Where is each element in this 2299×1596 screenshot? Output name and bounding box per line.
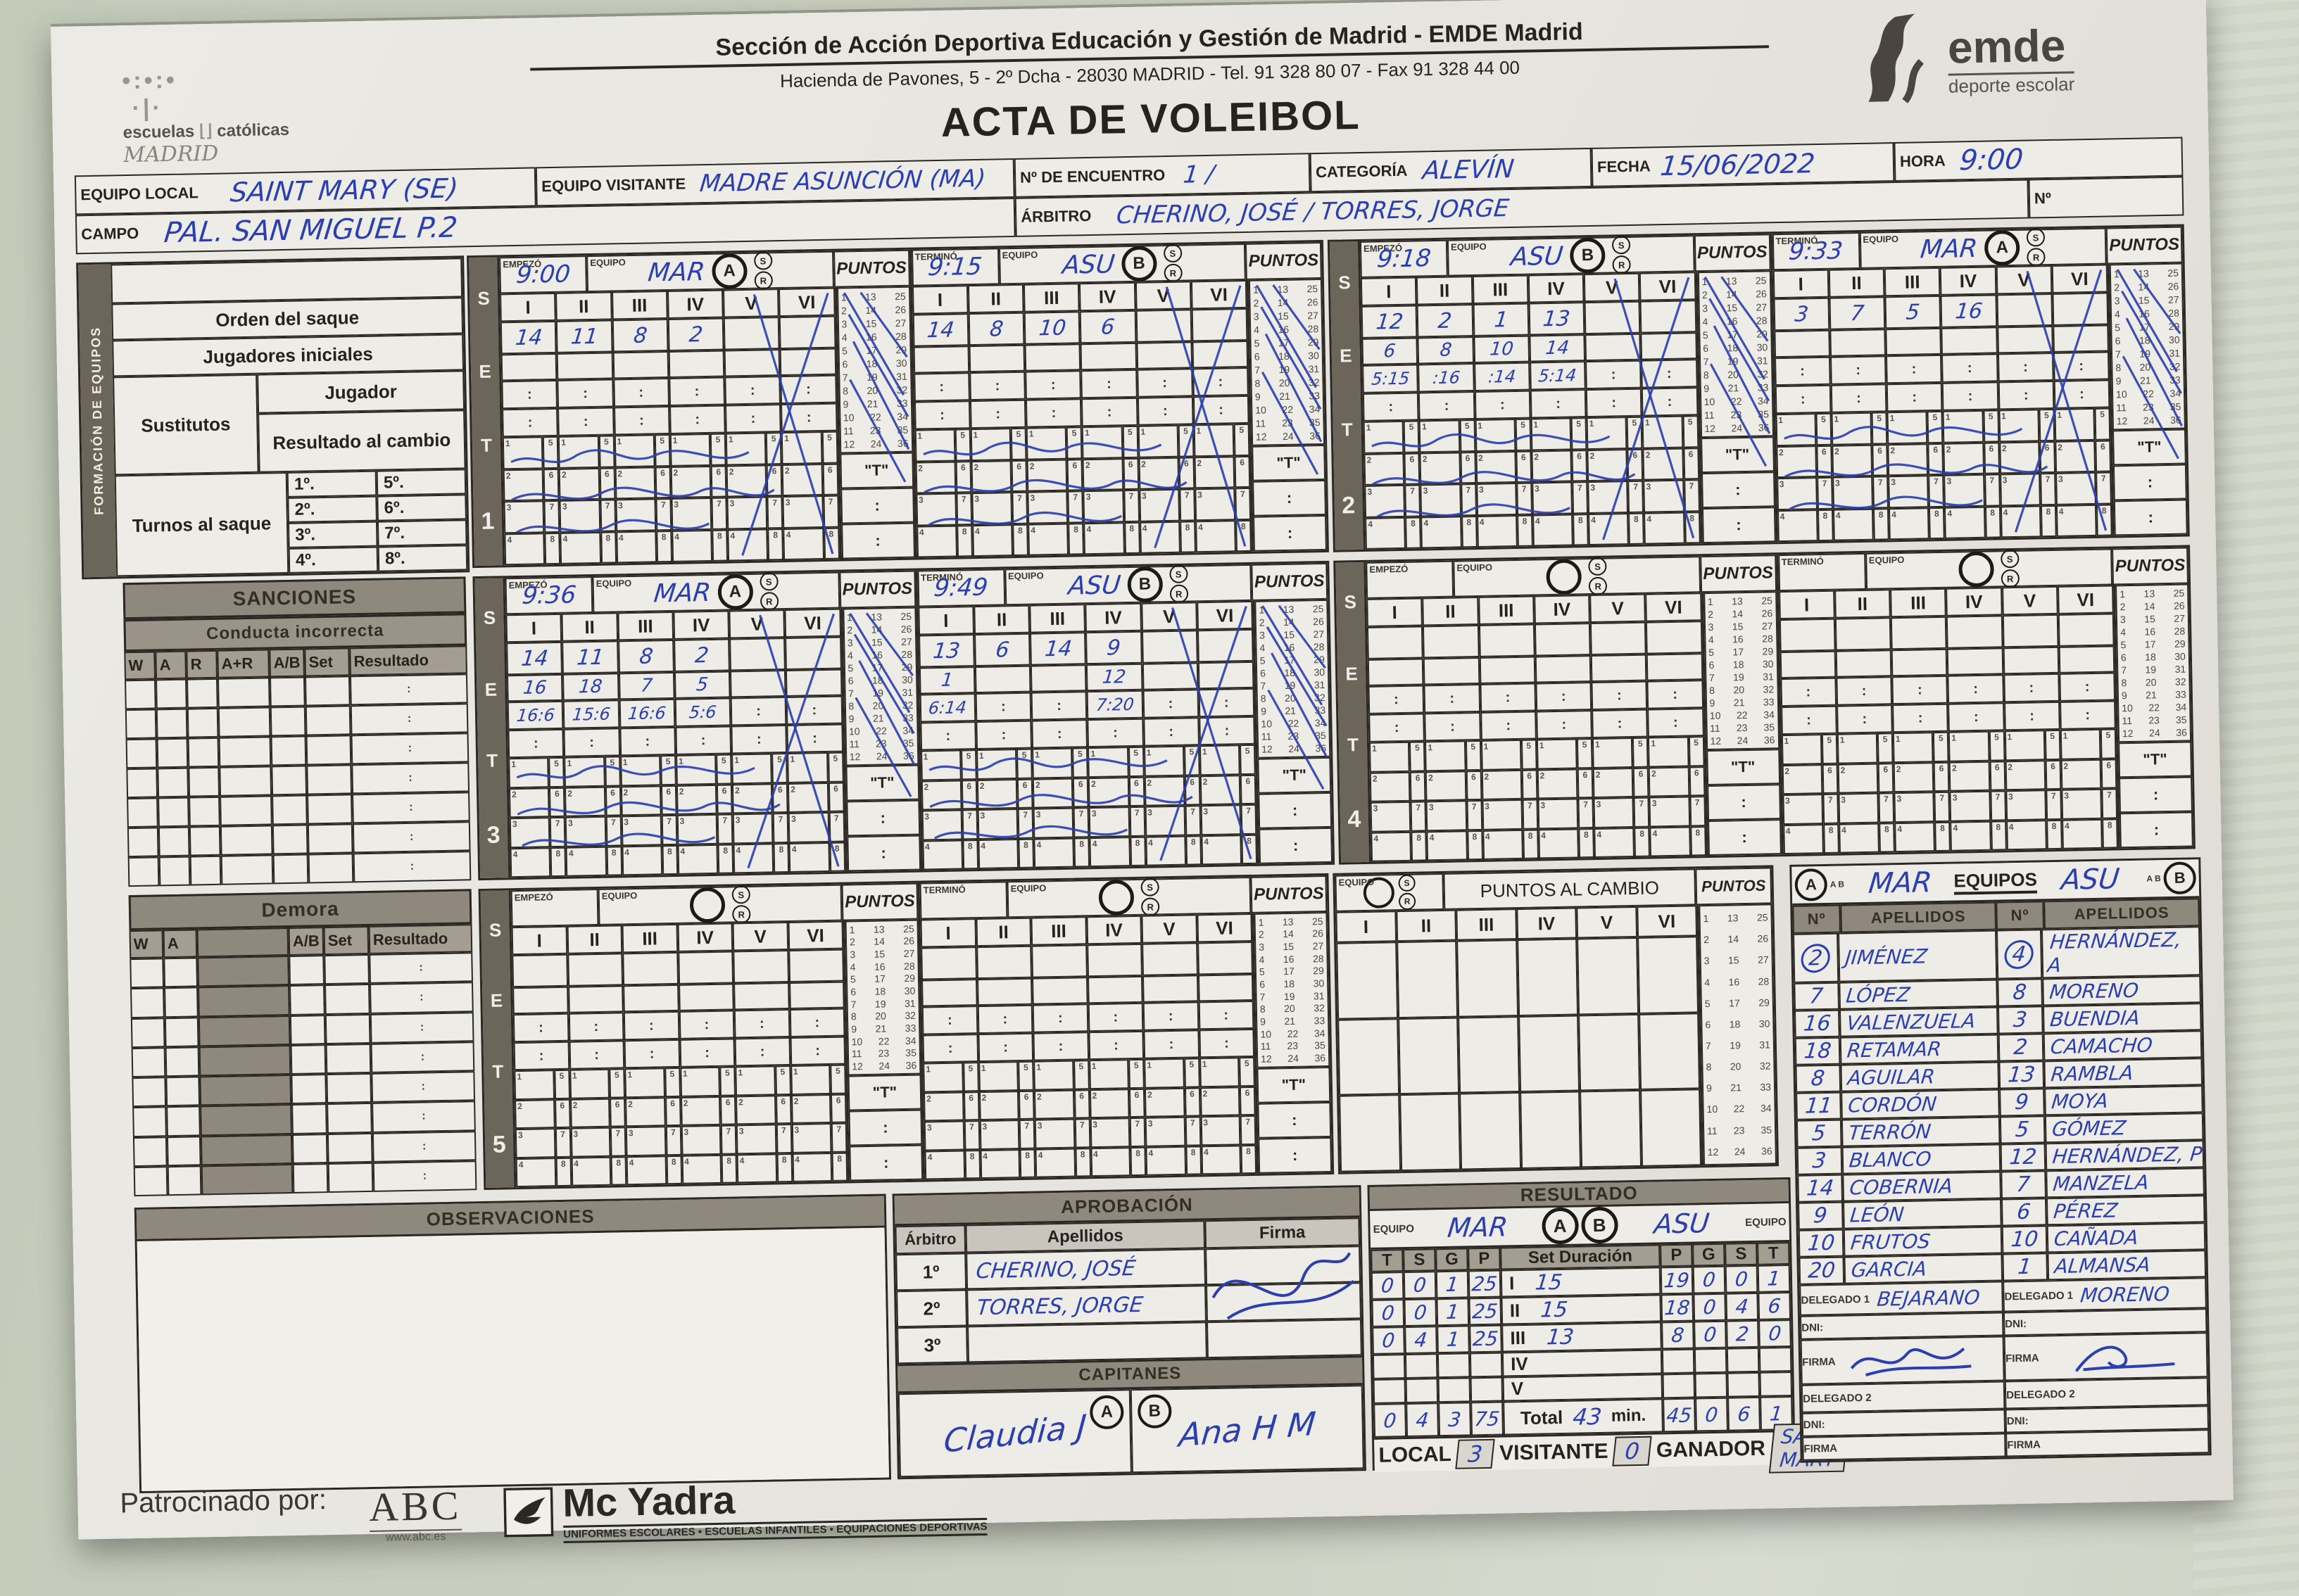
puntos-number: 29 [2169,321,2180,331]
equipo-local-label: EQUIPO LOCAL [76,182,203,205]
substitution-cell: : [1642,387,1698,416]
tally-row-number: 4 [2009,822,2014,832]
tally-cell: 1 [1026,427,1067,460]
tally-cell: 2 [1999,441,2040,474]
resultado-cell: 0 [1693,1266,1726,1294]
player-number-mar: 8 [1795,1065,1841,1093]
handwritten-number: 11 [569,324,599,349]
cambio-empty-cell [1577,937,1638,1015]
substitution-cell: : [969,372,1026,400]
set-col-header: II [976,918,1031,946]
tally-col-number: 8 [1628,512,1644,545]
puntos-number-row: 11325 [850,924,914,935]
set-col-header: IV [673,610,729,639]
resultado-value: 1 [1769,1402,1784,1425]
resultado-value: 6 [1767,1294,1782,1317]
substitution-entry: 7:20 [1095,695,1135,715]
puntos-number-row: 51729 [1708,646,1773,657]
set-main-grid: IIIIIIIVVVI1221136810145:15:16:145:14:::… [1361,272,1700,550]
tally-col-number: 6 [1410,771,1426,802]
tally-col-number: 7 [1934,792,1951,822]
puntos-number: 7 [1706,1041,1711,1051]
tally-pair: 48 [789,842,845,873]
player-number-asu: 1 [2002,1253,2048,1281]
puntos-number-row: 51729 [2120,639,2185,650]
puntos-number: 8 [1260,1004,1266,1014]
tally-col-number: 7 [1516,483,1532,515]
sets-row-2: SET3EMPEZÓ9:36EQUIPOMARASRPUNTOSIIIIIIIV… [472,545,2196,880]
puntos-number: 19 [1727,356,1739,366]
tally-pair: 26 [2005,759,2061,790]
sr-circles: SR [1398,875,1416,910]
tally-col-number: 5 [664,1068,681,1097]
puntos-number: 15 [866,318,877,328]
puntos-number-row: 11325 [1703,913,1768,924]
printed-colon: : [1556,395,1561,412]
tally-cell: 2 [1089,1089,1129,1119]
puntos-number-row: 31527 [1702,302,1767,313]
num-col-left: Nº [1792,905,1841,934]
tally-col-number: 8 [776,1153,793,1182]
substitution-cell: 5:15 [1362,364,1418,393]
tally-cell: 4 [980,1149,1020,1179]
puntos-number: 1 [1708,597,1713,607]
puntos-number: 18 [1278,350,1290,360]
substitution-cell: : [2060,700,2116,729]
tally-pair: 48 [1944,506,2001,539]
tally-cell: 1 [1998,409,2039,442]
resultado-total-mid: Total43min. [1503,1398,1663,1435]
puntos-number: 20 [2146,677,2157,687]
puntos-number: 3 [1254,311,1259,321]
tally-pair: 15 [1419,419,1475,452]
tally-col-number: 7 [1634,797,1650,828]
set-grid-cell: 10 [1473,336,1530,363]
puntos-number-row: 92133 [1709,697,1774,708]
puntos-number: 27 [895,317,907,327]
turnos-grid: 1º.5º.2º.6º.3º.7º.4º.8º. [287,469,468,574]
tally-pair: 48 [677,844,733,875]
handwritten-number: 6 [1383,341,1397,362]
set-grid-cell: 12 [1086,664,1142,691]
tally-pair: 15 [1831,412,1887,445]
puntos-number-row: 41628 [1259,954,1323,965]
puntos-number: 7 [1709,673,1715,683]
set-grid-cell [729,638,786,671]
tally-col-number: 8 [2096,504,2112,536]
tally-pair: 37 [1200,1115,1256,1146]
penalty-cell [188,737,220,768]
tally-row-number: 3 [1036,809,1041,819]
demora-cell [290,1015,326,1045]
tally-pair: 48 [1833,508,1889,541]
tally-row-number: 1 [1372,744,1377,754]
tally-col-number: 7 [1461,483,1477,516]
puntos-number-grid: 1132521426315274162851729618307193182032… [1697,270,1773,438]
cambio-title: PUNTOS AL CAMBIO [1443,868,1696,910]
puntos-number: 1 [1259,605,1264,615]
set-time-value: 9:15 [927,253,984,281]
puntos-number: 35 [1315,730,1326,740]
tally-pair: 15 [1592,737,1649,768]
tally-cell: 4 [571,1156,611,1186]
set-strip-letter: E [1345,663,1358,685]
tally-pair: 15 [1193,424,1249,457]
handwritten-number: 2 [688,322,704,347]
tally-pair: 37 [1587,481,1644,514]
puntos-number-row: 92133 [843,398,907,409]
resultado-col-header: T [1757,1242,1790,1265]
set-strip-letter: T [1342,419,1353,441]
handwritten-number: 8 [632,323,648,348]
tally-pair: 15 [970,428,1026,461]
tally-cell: 2 [2060,759,2101,790]
tally-pair: 26 [1199,1086,1255,1116]
set-grid-cell [568,985,624,1013]
set-grid-cell [2003,647,2059,674]
cambio-empty-cell [1336,942,1397,1019]
printed-colon: : [1856,362,1860,378]
set-grid-cell [1191,308,1247,341]
tally-pair: 15 [978,1061,1034,1091]
sr-circle: R [2027,248,2045,266]
tally-pair: 37 [510,817,566,848]
resultado-cell [1727,1372,1760,1398]
tally-pair: 15 [1642,415,1699,448]
tally-cell: 2 [1370,771,1411,802]
tally-pair: 37 [1090,1117,1145,1148]
tally-row-number: 3 [1485,802,1489,811]
tally-row-number: 1 [1202,747,1207,756]
puntos-number-row: 11325 [847,612,912,623]
colon-cell: : [1257,1102,1331,1139]
player-number-value: 1 [2017,1255,2033,1279]
substitution-entry: :14 [1487,367,1517,387]
puntos-number-row: 92133 [1261,705,1325,716]
equipo-label: EQUIPO [602,890,638,901]
puntos-number-row: 122436 [2117,414,2181,426]
substitution-cell: : [914,372,970,401]
tally-row-number: 4 [1947,508,1952,518]
tally-cell: 3 [921,809,962,840]
turno-cell: 4º. [289,547,379,574]
puntos-number: 23 [1731,410,1742,419]
tally-row-number: 3 [1841,794,1846,804]
player-number-value: 9 [1813,1203,1829,1228]
tally-cell: 2 [676,784,717,815]
delegado1-name: BEJARANO [1875,1286,1980,1311]
tally-col-number: 7 [1627,481,1644,513]
penalty-row: : [128,851,472,887]
demora-cell [199,1075,291,1106]
puntos-number: 9 [1255,391,1261,401]
resultado-cell: 0 [1693,1293,1726,1322]
tally-row-number: 3 [1038,1120,1043,1130]
set-grid-cell: 8 [612,319,668,352]
puntos-number: 2 [841,305,847,315]
puntos-number: 9 [851,1024,857,1034]
tally-row-number: 4 [981,840,985,850]
tally-row-number: 1 [924,752,928,761]
printed-colon: : [589,735,594,751]
demora-rows: :::::::: [130,952,477,1196]
local-score: 3 [1456,1439,1496,1469]
resultado-value: 25 [1472,1327,1499,1351]
puntos-number-row: 71931 [1709,671,1774,683]
substitution-cell: : [1198,1001,1254,1030]
tally-row-number: 1 [1147,748,1152,758]
set-grid-cell [921,979,977,1006]
tally-row-number: 3 [2058,474,2063,484]
substitution-cell: : [1081,398,1138,426]
player-name-value: HERNÁNDEZ, P [2051,1142,2203,1168]
resultado-cell: 4 [1404,1326,1437,1354]
tally-col-number: 8 [2041,505,2057,537]
tally-cell: 2 [732,783,773,814]
cambio-equipo-box: EQUIPOSR [1335,873,1444,912]
tally-col-number: 6 [610,1098,626,1127]
tally-pair: 15 [1032,747,1088,778]
puntos-number: 8 [1706,1062,1711,1072]
tally-col-number: 7 [1411,801,1427,831]
set-col-header: IV [1086,916,1142,944]
puntos-number-row: 102234 [2122,702,2186,714]
resultado-cell: 0 [1725,1265,1758,1293]
resultado-value: 3 [1447,1407,1462,1431]
formacion-blank-row [111,258,462,303]
set-col-header: V [723,289,779,317]
tally-pair: 26 [670,465,726,498]
tally-row-number: 2 [2058,442,2062,452]
tally-cell: 1 [1948,731,1989,762]
sr-circle: S [1169,565,1188,583]
puntos-number: 27 [901,637,912,647]
tally-cell: 2 [503,469,544,502]
tally-row-number: 1 [1478,421,1482,431]
delegates-mar: DELEGADO 1BEJARANODNI:FIRMADELEGADO 2DNI… [1799,1281,2006,1460]
set-col-header: III [1478,596,1535,625]
tally-col-number: 6 [1234,455,1250,488]
tally-col-number: 5 [1465,740,1481,771]
tally-cell: 4 [1035,1148,1075,1178]
cambio-col-header: I [1335,911,1396,943]
printed-colon: : [1388,399,1393,415]
tally-row-number: 1 [1085,428,1090,438]
tally-pair: 15 [1781,734,1837,765]
set-grid-cell [786,669,842,697]
sr-circle: S [754,251,772,270]
printed-colon: : [527,414,532,431]
demora-cell [131,1018,165,1048]
cambio-col-header: VI [1637,905,1697,937]
puntos-number: 15 [874,949,886,959]
puntos-number: 34 [1309,404,1321,414]
numero-label: Nº [2030,188,2055,210]
puntos-number: 28 [2168,308,2179,317]
set-strip-letter: S [477,287,490,309]
puntos-number-row: 102234 [851,1035,916,1046]
printed-colon: : [1003,1039,1008,1056]
tally-col-number: 6 [1878,763,1894,793]
t-mark-cell: "T" [2118,741,2192,778]
printed-colon: : [1917,682,1922,698]
tally-row-number: 4 [624,847,629,857]
puntos-header: PUNTOS [842,883,919,921]
set-block-5: SET5EMPEZÓEQUIPOSRPUNTOSIIIIIIIVVVI:::::… [479,873,1335,1190]
tally-row-number: 2 [735,785,740,795]
substitution-cell: : [624,1011,679,1040]
tally-col-number: 5 [2094,407,2110,440]
tally-col-number: 6 [1577,768,1594,799]
tally-pair: 15 [1837,733,1894,764]
tally-cell: 3 [1894,792,1934,823]
puntos-number: 25 [1306,284,1318,293]
puntos-number: 19 [1730,1040,1741,1050]
tally-cell: 1 [1837,733,1878,764]
set-grid-cell: 8 [968,312,1024,346]
tally-cell: 2 [1949,761,1990,792]
puntos-number-row: 11325 [1259,604,1323,615]
set-grid-cell [1197,629,1254,662]
printed-colon: : [807,410,812,426]
penalty-cell [270,677,306,707]
tally-row-number: 2 [1091,778,1096,788]
tally-pair: 15 [976,749,1033,780]
tally-cell: 2 [971,460,1012,493]
puntos-number: 8 [2115,362,2121,372]
puntos-number: 36 [903,751,914,761]
printed-colon: : [1505,690,1510,706]
set-time-box: TERMINÓ9:15 [912,248,1000,286]
tally-row-number: 4 [1368,519,1373,528]
tally-row-number: 3 [1092,1120,1097,1129]
set-grid-cell [1835,617,1891,650]
tally-row-number: 2 [562,469,567,479]
puntos-number: 26 [1756,289,1767,298]
resultado-cell [1727,1348,1760,1373]
puntos-number: 16 [2139,308,2150,318]
puntos-number: 2 [847,625,852,635]
resultado-value: 0 [1412,1273,1427,1296]
printed-colon: : [945,728,950,744]
tally-cell: 1 [1138,425,1178,458]
puntos-number: 18 [1730,1019,1741,1029]
tally-pair: 26 [1537,768,1593,799]
colon-cell: : [1253,515,1327,552]
tally-row-number: 4 [1038,1150,1043,1160]
substitution-cell: : [1088,718,1144,747]
printed-colon: : [1618,716,1623,732]
puntos-number: 11 [2116,403,2127,412]
set-grid-cell: 11 [562,640,618,673]
puntos-number-row: 71931 [1706,1039,1770,1051]
demora-cell [132,1106,167,1136]
tally-row-number: 2 [738,1097,743,1107]
colon-cell: : [841,523,915,559]
puntos-number: 4 [2120,627,2126,637]
puntos-number-row: 112335 [1255,417,1320,429]
puntos-number: 15 [1728,956,1739,965]
puntos-number: 5 [2115,322,2120,332]
puntos-number: 13 [1726,276,1737,286]
set-col-header: I [1772,270,1829,298]
sr-circles: SR [754,251,773,289]
tally-col-number: 5 [1871,412,1887,444]
printed-colon: : [583,386,588,402]
puntos-number: 9 [1260,1017,1266,1027]
tally-cell: 1 [508,757,549,788]
puntos-number: 15 [1732,621,1744,631]
demora-cell [292,1134,328,1164]
substitution-cell: : [1031,691,1088,720]
printed-colon: : [1113,725,1118,741]
printed-colon: : [1162,375,1167,391]
tally-pair: 37 [1894,792,1950,823]
set-equipo-box: EQUIPOASUBSR [998,243,1245,284]
resultado-cell [1694,1348,1727,1374]
tally-cell: 1 [1088,747,1128,778]
set-col-header: V [1584,273,1640,302]
tally-row-number: 2 [729,467,734,476]
referee-signature [1198,1231,1362,1354]
puntos-number: 15 [2139,295,2150,305]
t-mark-cell: "T" [1706,749,1780,785]
tally-col-number: 6 [1822,764,1838,794]
puntos-number: 6 [842,359,848,369]
puntos-number: 14 [1732,609,1743,619]
substitution-cell: : [920,721,976,750]
tally-col-number: 7 [1123,490,1140,522]
tally-cell: 2 [1832,444,1872,477]
tally-pair: 26 [2060,759,2117,790]
arbitro-label: ÁRBITRO [1016,205,1096,228]
set-grid-cell: 2 [674,638,730,671]
tally-row-number: 3 [2008,792,2013,802]
penalty-cell [308,853,354,883]
set-letter-circle: A [712,253,748,289]
equipo-label: EQUIPO [1011,882,1047,894]
set-time-box: EMPEZÓ9:36 [505,576,593,614]
tally-row-number: 1 [1834,414,1839,424]
player-name-value: ALMANSA [2053,1253,2151,1279]
tally-col-number: 6 [1521,769,1537,799]
tally-cell: 4 [622,845,662,876]
substitution-cell: : [734,1009,790,1038]
tally-pair: 26 [726,464,783,498]
tally-pair: 48 [1201,834,1257,865]
tally-row-number: 2 [1646,450,1651,460]
set-strip-letter: E [1340,345,1352,367]
tally-cell: 1 [781,431,822,464]
set-col-header: III [1890,588,1946,617]
puntos-number: 36 [2170,414,2181,424]
tally-pair: 48 [1894,821,1951,852]
tally-pair: 48 [978,838,1034,869]
tally-col-number: 5 [1072,747,1088,778]
resultado-cell: 2 [1726,1320,1759,1348]
player-number-value: 14 [1806,1176,1835,1201]
tally-row-number: 4 [1786,825,1791,835]
substitution-cell: : [1418,391,1475,420]
player-name-mar: VALENZUELA [1839,1007,1998,1037]
tally-cell: 1 [921,749,962,780]
set-grid-cell [679,983,734,1011]
puntos-number-row: 31527 [848,637,912,648]
set-grid-cell [1142,975,1198,1002]
tally-col-number: 8 [1185,835,1202,866]
set-col-header: IV [1534,595,1590,623]
printed-colon: : [1912,389,1917,405]
